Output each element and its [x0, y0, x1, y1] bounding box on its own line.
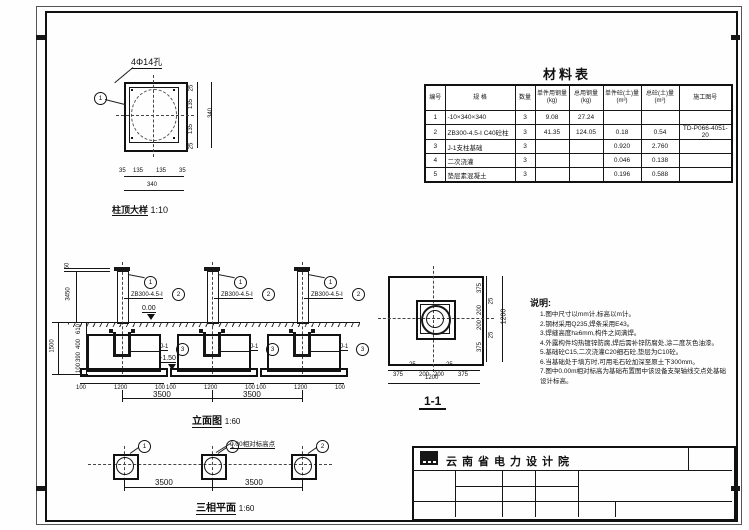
logo-detail [423, 461, 426, 463]
leader-line [124, 298, 132, 299]
materials-cell: 0.18 [603, 125, 641, 140]
dim-label: 3450 [66, 287, 72, 300]
dim-label: 25 [488, 298, 494, 305]
leader-line [219, 351, 249, 352]
leader-line [129, 351, 159, 352]
dim-label: 25 [488, 332, 494, 339]
materials-header-cell: 总砼(土)量(m³) [641, 85, 679, 111]
dim-label: 1200 [294, 385, 307, 391]
ext-line [212, 390, 213, 402]
level-flag [147, 314, 155, 320]
anchor-bolt [221, 329, 225, 333]
ext-line [302, 390, 303, 402]
bolt-hole-mark [131, 137, 133, 139]
dim-label: 25 [409, 362, 416, 368]
materials-cell [569, 168, 603, 183]
detail-centerline-v [153, 75, 154, 157]
foundation-label: J-1 [340, 344, 348, 351]
anchor-bolt [311, 329, 315, 333]
detail-title-scale: 1:10 [151, 205, 169, 215]
foundation-block [267, 334, 341, 372]
column-type-label: ZB300-4.5-Ⅰ [131, 291, 163, 299]
rail-line [64, 268, 110, 269]
section-title: 1-1 [419, 394, 446, 410]
foundation-block [177, 334, 251, 372]
title-block-line [412, 501, 732, 502]
materials-cell [679, 111, 732, 125]
column-marker-circle: 2 [262, 288, 275, 301]
materials-cell: 垫层素混凝土 [445, 168, 515, 183]
dim-label: 390 [76, 352, 82, 362]
column-marker-circle: 2 [352, 288, 365, 301]
dim-label: 135 [188, 124, 194, 134]
materials-cell: 0.138 [641, 154, 679, 168]
column-type-label: ZB300-4.5-Ⅰ [221, 291, 253, 299]
materials-cell [679, 140, 732, 154]
plan-marker-circle: 2 [316, 440, 329, 453]
materials-header-cell: 施工图号 [679, 85, 732, 111]
note-item: 5.基础砼C15,二次浇灌C20细石砼,垫层为C10砼。 [540, 348, 732, 358]
materials-cell: 3 [515, 154, 535, 168]
note-item: 4.外露构件均热镀锌防腐,焊后需补锌防腐处,涂二度灰色油漆。 [540, 339, 732, 349]
top-marker-circle: 1 [324, 276, 337, 289]
note-item: 2.钢材采用Q235,焊条采用E43。 [540, 320, 732, 330]
dim-line [76, 271, 77, 322]
materials-header-cell: 规 格 [445, 85, 515, 111]
table-row: 4二次浇灌30.0460.138 [425, 154, 732, 168]
materials-cell: 2 [425, 125, 445, 140]
dim-label: 1200 [114, 385, 127, 391]
notes-list: 1.图中尺寸以mm计,标高以m计。2.钢材采用Q235,焊条采用E43。3.焊缝… [540, 310, 732, 386]
materials-cell: 1 [425, 111, 445, 125]
elevation-title: 立面图 1:60 [192, 412, 240, 427]
dim-label: 200 [477, 320, 483, 330]
materials-cell: 二次浇灌 [445, 154, 515, 168]
materials-header-cell: 单件用钢量(kg) [535, 85, 569, 111]
spacing-label: 3500 [153, 390, 171, 399]
foundation-label: J-1 [160, 344, 168, 351]
materials-table: 编号规 格数量单件用钢量(kg)总用钢量(kg)单件砼(土)量(m³)总砼(土)… [424, 84, 733, 183]
materials-cell: TD-P066-4051-20 [679, 125, 732, 140]
dim-total-label: 1200 [425, 375, 438, 381]
title-block-line [688, 446, 689, 470]
base-slab [170, 368, 258, 377]
materials-cell [569, 154, 603, 168]
materials-header-cell: 数量 [515, 85, 535, 111]
dim-line [260, 383, 344, 384]
plan-note: 0.00相对标高点 [230, 438, 275, 449]
plan-title-scale: 1:60 [239, 504, 255, 513]
ext-line [52, 374, 88, 375]
materials-cell: 0.54 [641, 125, 679, 140]
materials-cell [535, 154, 569, 168]
ext-line [122, 390, 123, 402]
detail-title-text: 柱顶大样 [112, 205, 148, 216]
notes-title: 说明: [530, 296, 551, 309]
detail-centerline-h [116, 115, 194, 116]
materials-cell: 3 [515, 140, 535, 154]
dim-line [80, 383, 164, 384]
dim-line [388, 370, 480, 371]
materials-cell: 2.760 [641, 140, 679, 154]
title-block-line [502, 470, 503, 517]
dim-label: 375 [477, 342, 483, 352]
bolt-hole-mark [173, 89, 175, 91]
dim-line [124, 190, 184, 191]
dim-label: 375 [458, 372, 468, 378]
plan-column-circle [204, 457, 222, 475]
title-block-line [535, 470, 536, 517]
materials-cell: 9.08 [535, 111, 569, 125]
materials-cell: -10×340×340 [445, 111, 515, 125]
dim-label: 375 [477, 283, 483, 293]
centering-mark [731, 35, 740, 40]
centering-mark [36, 35, 45, 40]
title-block-line [455, 486, 578, 487]
centering-mark [36, 486, 45, 491]
materials-table-rows: 1-10×340×34039.0827.242ZB300-4.5-Ⅰ C40砼柱… [425, 111, 732, 183]
dim-label: 50 [64, 263, 70, 270]
note-item: 1.图中尺寸以mm计,标高以m计。 [540, 310, 732, 320]
foundation-marker-circle: 3 [356, 343, 369, 356]
elevation-title-text: 立面图 [192, 416, 222, 428]
section-pipe-circle [426, 310, 444, 328]
top-marker-circle: 1 [144, 276, 157, 289]
dim-total-label: 340 [147, 182, 157, 188]
foundation-block [87, 334, 161, 372]
level-label-top: 0.00 [142, 305, 156, 313]
materials-cell: 0.196 [603, 168, 641, 183]
dim-label: 100 [76, 385, 86, 391]
column-marker-circle: 2 [172, 288, 185, 301]
leader-line [309, 351, 339, 352]
dim-total-label: 1200 [500, 309, 507, 325]
dim-total-label: 1500 [50, 339, 56, 352]
base-slab [80, 368, 168, 377]
dim-line [86, 322, 87, 374]
anchor-bolt [131, 329, 135, 333]
leader-line [214, 298, 222, 299]
title-block-line [615, 501, 616, 517]
materials-header-cell: 编号 [425, 85, 445, 111]
column-type-label: ZB300-4.5-Ⅰ [311, 291, 343, 299]
dim-line [197, 82, 198, 148]
detail-hole-label: 4Φ14孔 [131, 55, 162, 69]
spacing-label: 3500 [243, 390, 261, 399]
table-row: 5垫层素混凝土30.1960.588 [425, 168, 732, 183]
materials-cell [641, 111, 679, 125]
plan-title-text: 三相平面 [196, 503, 236, 515]
foundation-label: J-1 [250, 344, 258, 351]
materials-cell: 5 [425, 168, 445, 183]
dim-label: 610 [76, 324, 82, 334]
plan-column-circle [116, 457, 134, 475]
materials-cell [603, 111, 641, 125]
dim-line [124, 176, 184, 177]
table-row: 3J-1支柱基础30.9202.760 [425, 140, 732, 154]
leader-line [304, 298, 312, 299]
note-item: 3.焊缝高度h≥6mm,构件之间满焊。 [540, 329, 732, 339]
detail-title: 柱顶大样 1:10 [112, 203, 168, 216]
materials-table-header: 编号规 格数量单件用钢量(kg)总用钢量(kg)单件砼(土)量(m³)总砼(土)… [425, 85, 732, 111]
dim-label: 35 [179, 168, 186, 174]
rail-line [64, 271, 110, 272]
dim-label: 25 [188, 143, 194, 150]
dim-total-label: 340 [208, 108, 214, 118]
materials-cell: 4 [425, 154, 445, 168]
dim-label: 100 [335, 385, 345, 391]
dim-line [170, 383, 254, 384]
level-label-bottom: -1.50 [160, 355, 176, 363]
company-name: 云南省电力设计院 [446, 453, 574, 469]
top-marker-circle: 1 [234, 276, 247, 289]
dim-label: 135 [133, 168, 143, 174]
bolt-hole-mark [173, 137, 175, 139]
title-block-line [578, 470, 579, 517]
materials-cell [569, 140, 603, 154]
dim-label: 400 [76, 339, 82, 349]
dim-label: 200 [477, 305, 483, 315]
materials-cell: 0.588 [641, 168, 679, 183]
materials-cell: 0.920 [603, 140, 641, 154]
table-row: 2ZB300-4.5-Ⅰ C40砼柱341.35124.050.180.54TD… [425, 125, 732, 140]
materials-cell: 41.35 [535, 125, 569, 140]
ext-line [52, 322, 68, 323]
ext-line [124, 480, 125, 491]
materials-cell [679, 168, 732, 183]
dim-line [58, 322, 59, 374]
table-row: 1-10×340×34039.0827.24 [425, 111, 732, 125]
title-block-line [412, 470, 732, 471]
dim-label: 135 [188, 99, 194, 109]
elevation-title-scale: 1:60 [225, 417, 241, 426]
dim-line [388, 383, 480, 384]
spacing-label: 3500 [245, 478, 263, 487]
dim-label: 1200 [204, 385, 217, 391]
dim-label: 135 [156, 168, 166, 174]
logo-detail [428, 461, 431, 463]
dim-line [124, 487, 302, 488]
note-item: 6.当基础处于填方时,可用毛石砼加深至原土下300mm。 [540, 358, 732, 368]
materials-cell: 124.05 [569, 125, 603, 140]
plan-title: 三相平面 1:60 [196, 499, 254, 514]
materials-header-cell: 总用钢量(kg) [569, 85, 603, 111]
ext-line [302, 480, 303, 491]
materials-cell: 3 [425, 140, 445, 154]
materials-cell [679, 154, 732, 168]
dim-label: 35 [119, 168, 126, 174]
base-slab [260, 368, 348, 377]
materials-cell [535, 140, 569, 154]
title-block-line [455, 470, 456, 517]
dim-line [486, 276, 487, 362]
plan-marker-circle: 1 [138, 440, 151, 453]
materials-cell: ZB300-4.5-Ⅰ C40砼柱 [445, 125, 515, 140]
materials-cell [535, 168, 569, 183]
materials-cell: 3 [515, 125, 535, 140]
materials-cell: 3 [515, 111, 535, 125]
spacing-label: 3500 [155, 478, 173, 487]
logo-detail [433, 461, 436, 463]
drawing-sheet: 4Φ14孔 1 25 135 135 25 340 35 135 135 35 … [0, 0, 749, 530]
note-item: 7.图中0.00m相对标高为基础布置图中该设备支架轴线交点处基础设计标高。 [540, 367, 732, 386]
dim-label: 25 [446, 362, 453, 368]
bolt-hole-mark [131, 89, 133, 91]
materials-cell: 27.24 [569, 111, 603, 125]
materials-cell: 3 [515, 168, 535, 183]
materials-header-cell: 单件砼(土)量(m³) [603, 85, 641, 111]
plan-column-circle [294, 457, 312, 475]
materials-table-title: 材料表 [543, 64, 591, 83]
level-flag [168, 364, 176, 370]
materials-cell: 0.046 [603, 154, 641, 168]
materials-cell: J-1支柱基础 [445, 140, 515, 154]
dim-label: 100 [76, 363, 82, 373]
dim-label: 375 [393, 372, 403, 378]
ext-line [212, 480, 213, 491]
dim-label: 25 [188, 85, 194, 92]
